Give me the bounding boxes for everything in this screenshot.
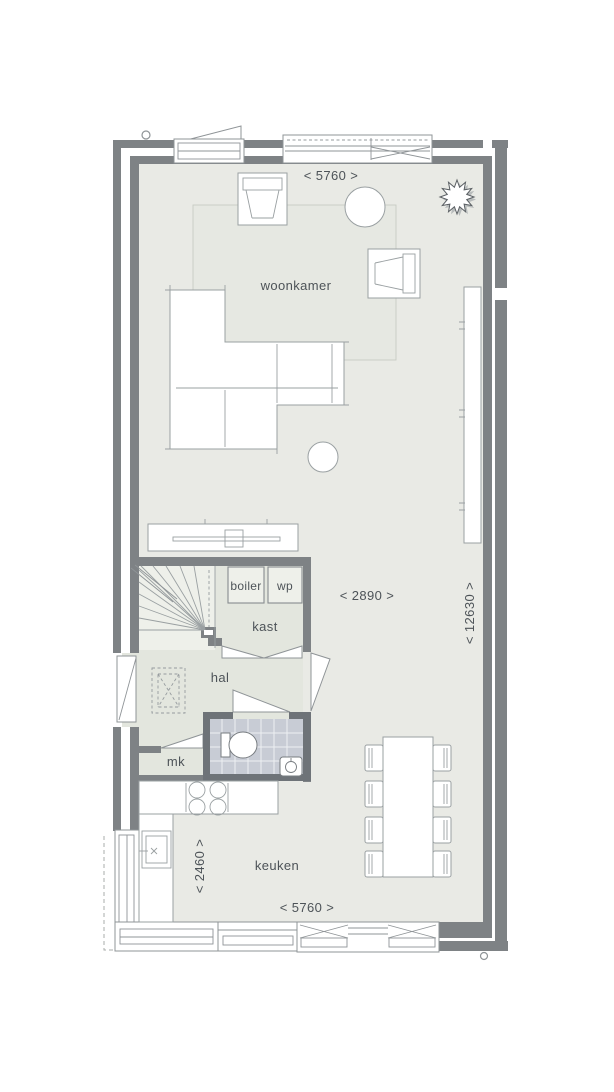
- front-door: [117, 656, 136, 722]
- dimension-top-width: < 5760 >: [304, 168, 359, 183]
- bathroom: [203, 712, 311, 781]
- chair: [433, 851, 451, 877]
- wall-hall-east-upper: [303, 557, 311, 652]
- wall-left-outer-lower: [113, 727, 121, 831]
- dining-table: [383, 737, 433, 877]
- kitchen-counter-top: [139, 781, 278, 814]
- wall-joint-gap: [483, 138, 492, 156]
- chair: [433, 781, 451, 807]
- wall-left-inner-upper: [130, 162, 139, 653]
- label-boiler: boiler: [230, 579, 261, 593]
- dimension-bottom-width: < 5760 >: [280, 900, 335, 915]
- dimension-house-depth: < 12630 >: [462, 582, 477, 644]
- survey-marker-top-left: [142, 131, 150, 139]
- round-stool: [308, 442, 338, 472]
- armchair-right: [368, 249, 420, 298]
- stairs-newel-cap: [204, 630, 213, 635]
- window-top-right: [283, 135, 432, 163]
- dimension-living-width: < 2890 >: [340, 588, 395, 603]
- round-side-table: [345, 187, 385, 227]
- wall-left-outer-upper: [113, 146, 121, 653]
- bathroom-wall-right: [303, 712, 311, 781]
- room-label-closet: kast: [252, 619, 277, 634]
- room-label-living: woonkamer: [260, 278, 332, 293]
- top-windows: [174, 126, 432, 163]
- wall-kitchen-top: [139, 775, 203, 781]
- floor-plan: woonkamer hal kast keuken mk boiler wp <…: [0, 0, 614, 1092]
- tv-cabinet: [148, 519, 298, 551]
- sliding-door: [297, 922, 439, 952]
- survey-marker-bottom-right: [481, 953, 488, 960]
- room-label-kitchen: keuken: [255, 858, 299, 873]
- window-top-left: [174, 126, 244, 163]
- wall-living-divider: [130, 557, 311, 566]
- wall-right-outer-lower: [495, 300, 507, 951]
- chair: [433, 745, 451, 771]
- chair: [365, 851, 383, 877]
- wall-mk-top: [139, 746, 161, 753]
- chair: [433, 817, 451, 843]
- hand-basin-icon: [280, 757, 302, 776]
- room-label-hall: hal: [211, 670, 230, 685]
- floor-plan-page: woonkamer hal kast keuken mk boiler wp <…: [0, 0, 614, 1092]
- room-label-meter-cupboard: mk: [167, 754, 185, 769]
- bottom-window-middle: [218, 922, 298, 951]
- dining-set: [365, 737, 451, 877]
- armchair-top: [238, 173, 287, 225]
- chair: [365, 781, 383, 807]
- label-heat-pump: wp: [276, 579, 293, 593]
- wall-left-inner-lower: [130, 727, 139, 831]
- chair: [365, 745, 383, 771]
- neighbour-wall-stub: [438, 941, 508, 951]
- bathroom-wall-left: [203, 712, 210, 781]
- wall-right-outer-upper: [495, 146, 507, 288]
- dimension-kitchen-width: < 2460 >: [192, 839, 207, 894]
- chair: [365, 817, 383, 843]
- toilet-icon: [221, 732, 257, 758]
- wall-right-inner: [483, 156, 492, 938]
